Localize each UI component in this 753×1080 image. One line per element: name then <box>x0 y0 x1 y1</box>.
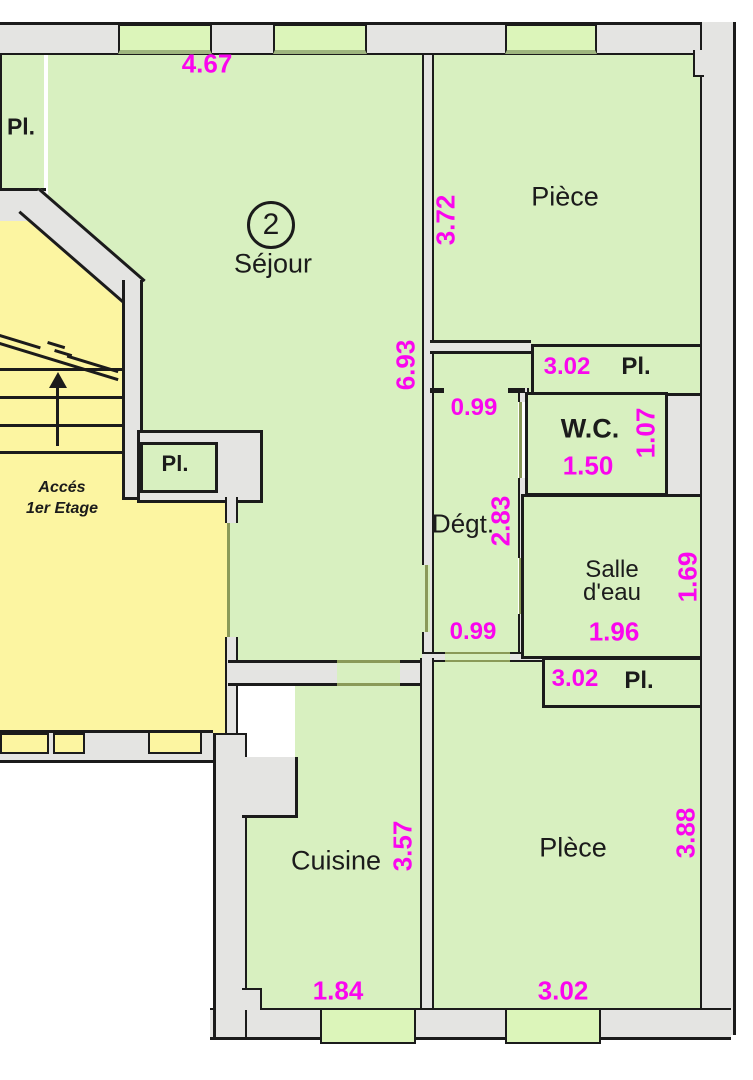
degt-bottom-opening <box>445 652 510 662</box>
stairs-access-line1: Accés <box>26 477 98 498</box>
degt-top-wall <box>430 388 444 393</box>
window-top-2 <box>273 24 367 54</box>
right-wall <box>700 22 736 1035</box>
stairs-access-label: Accés 1er Etage <box>26 477 98 519</box>
sejour-number: 2 <box>263 208 280 242</box>
salle-eau-label: Salle d'eau <box>583 558 641 604</box>
sejour-hall-door <box>227 523 230 637</box>
cuisine-width-dim: 1.84 <box>313 976 364 1007</box>
piece-bottom-height-dim: 3.88 <box>671 808 702 859</box>
degt-bottom-dim: 0.99 <box>450 618 497 646</box>
piece-bottom-width-dim: 3.02 <box>538 976 589 1007</box>
closet-upper-right-dim: 3.02 <box>544 353 591 381</box>
piece-top-height-dim: 3.72 <box>431 195 462 246</box>
bottom-wall <box>210 1008 731 1040</box>
sejour-height-dim: 6.93 <box>391 340 422 391</box>
stair-arrow-shaft <box>56 386 59 446</box>
hall-right-wall <box>225 497 238 523</box>
wc-label: W.C. <box>561 414 620 445</box>
sejour-label: Séjour <box>234 249 312 280</box>
cuisine-floor-left <box>242 815 295 1008</box>
closet-lower-right-label: Pl. <box>624 667 653 695</box>
stairs-access-line2: 1er Etage <box>26 498 98 519</box>
sejour-width-dim: 4.67 <box>182 49 233 80</box>
window-top-3 <box>505 24 597 54</box>
wc-height-dim: 1.07 <box>631 408 662 459</box>
window-bottom-1 <box>320 1008 416 1044</box>
hall-window-1 <box>0 733 49 754</box>
window-bottom-2 <box>505 1008 601 1044</box>
cuisine-piece-wall <box>420 658 434 1008</box>
cuisine-height-dim: 3.57 <box>388 821 419 872</box>
sejour-number-badge: 2 <box>247 201 295 249</box>
wc-width-dim: 1.50 <box>563 451 614 482</box>
piece-top-bottom-wall <box>430 340 531 354</box>
stair-arrow-head-icon <box>49 372 67 388</box>
floor-plan: Pl. 4.67 2 Séjour 6.93 Pièce 3.72 3.02 P… <box>0 0 753 1080</box>
hall-window-3 <box>148 731 202 754</box>
stair-tread <box>0 424 122 427</box>
stair-tread <box>0 451 122 454</box>
cuisine-step <box>242 988 262 1010</box>
wc-door <box>519 402 522 478</box>
salle-eau-width-dim: 1.96 <box>589 617 640 648</box>
degt-top-wall <box>508 388 525 393</box>
closet-stair-label: Pl. <box>162 451 189 477</box>
piece-top-label: Pièce <box>531 182 599 213</box>
salle-eau-label-line2: d'eau <box>583 581 641 604</box>
degt-height-dim: 2.83 <box>486 496 517 547</box>
degt-top-dim: 0.99 <box>451 394 498 422</box>
piece-bottom-label: Plèce <box>539 833 607 864</box>
cuisine-label: Cuisine <box>291 846 381 877</box>
piece-top-corner-notch <box>693 50 704 77</box>
stair-tread <box>0 396 122 399</box>
cuisine-corner-block <box>242 757 298 818</box>
salle-eau-height-dim: 1.69 <box>673 552 704 603</box>
hall-window-2 <box>53 733 85 754</box>
closet-upper-right-label: Pl. <box>621 353 650 381</box>
sejour-degt-door <box>425 565 428 632</box>
closet-top-left-label: Pl. <box>7 114 35 141</box>
sejour-cuisine-opening <box>337 660 400 686</box>
salle-eau-label-line1: Salle <box>583 558 641 581</box>
closet-lower-right-dim: 3.02 <box>552 665 599 693</box>
